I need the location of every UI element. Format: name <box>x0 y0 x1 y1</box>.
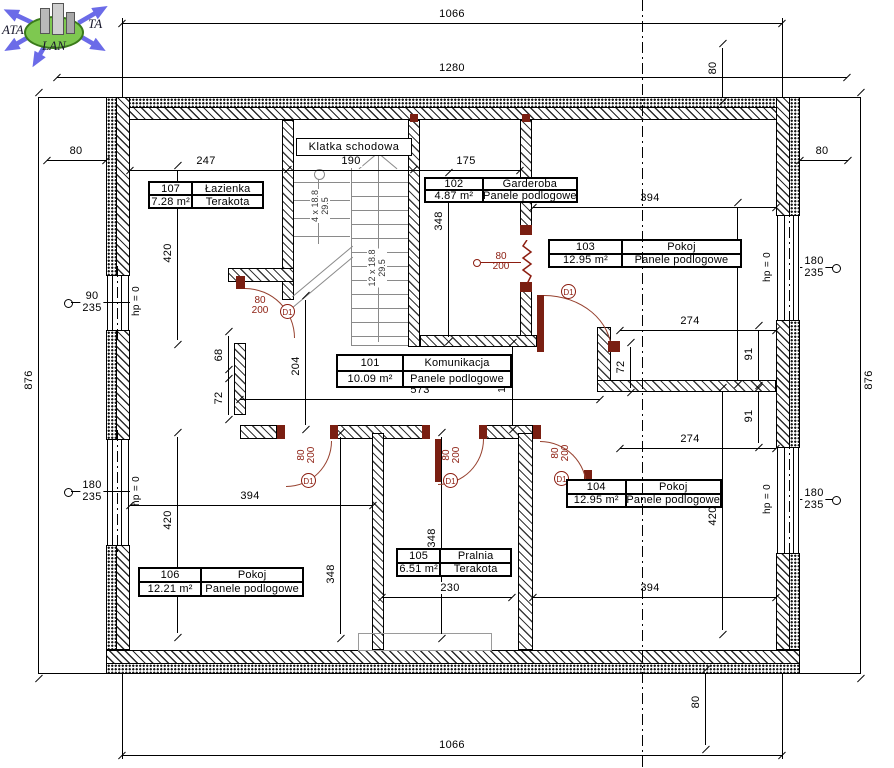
room-floor: Panele podlogowe <box>403 371 511 387</box>
door-jamb <box>479 425 487 439</box>
window-sill-label: hp = 0 <box>762 482 774 516</box>
wall-insulation <box>789 554 799 649</box>
window-size-width: 180 <box>80 479 103 491</box>
stair-tread <box>352 336 408 337</box>
dim-label: 876 <box>863 368 875 391</box>
room-area: 12.95 m² <box>549 254 622 268</box>
window-size-height: 235 <box>802 499 825 511</box>
dim-line-105-230 <box>382 597 512 598</box>
dim-label: 1066 <box>437 739 467 751</box>
wall-hall-left <box>234 343 246 415</box>
stair-walk-line <box>378 152 379 342</box>
room-name: Pokoj <box>622 240 741 254</box>
room-table-105: 105 Pralnia 6.51 m² Terakota <box>396 548 512 577</box>
fixture-outline <box>358 633 492 651</box>
door-size-label: 80200 <box>551 445 571 462</box>
dim-line-hall-204 <box>305 300 306 425</box>
dim-label: 876 <box>23 368 35 391</box>
stair-tread <box>352 182 408 183</box>
window-size-width: 90 <box>84 290 101 302</box>
dim-line-72-left <box>228 374 229 415</box>
logo-building-icon <box>66 12 75 34</box>
stair-flight-short-label: 4 x 18.829.5 <box>310 189 330 223</box>
dim-line-vest-132 <box>512 347 513 425</box>
dim-line-104-394 <box>533 597 776 598</box>
dim-label: 348 <box>433 209 445 232</box>
dim-label: 274 <box>678 433 701 445</box>
door-tag: D1 <box>280 304 295 319</box>
dim-label: 420 <box>162 508 174 531</box>
wall-hatch <box>777 554 789 649</box>
door-jamb <box>533 425 541 439</box>
outer-wall-right-upper <box>776 97 800 216</box>
dim-line-106-348 <box>340 437 341 634</box>
dim-line-rooms-top <box>130 170 520 171</box>
dim-label: 80 <box>707 60 719 77</box>
door-size-label: 80200 <box>442 447 462 464</box>
dim-line-103-420 <box>737 207 738 380</box>
outer-wall-right-middle <box>776 320 800 448</box>
wall-hatch <box>107 651 799 663</box>
room-area: 12.95 m² <box>567 494 626 508</box>
window-sill-label: hp = 0 <box>762 250 774 284</box>
room-table-103: 103 Pokoj 12.95 m² Panele podlogowe <box>548 239 742 268</box>
door-tag: D1 <box>561 284 576 299</box>
room-floor: Panele podlogowe <box>201 582 303 596</box>
dim-label: 72 <box>213 390 225 407</box>
wall-hall-bottom-a <box>240 425 277 439</box>
window-centerline <box>789 206 790 330</box>
extension-line <box>122 18 123 97</box>
dim-line-91-bottom <box>758 392 759 443</box>
extension-line <box>38 97 106 98</box>
extension-line <box>782 674 783 759</box>
dim-label: 247 <box>194 155 217 167</box>
dim-line-103-394 <box>533 207 776 208</box>
room-number: 102 <box>425 178 483 190</box>
dim-line-106-394 <box>130 505 373 506</box>
outer-wall-right-lower <box>776 553 800 650</box>
room-name: Pokoj <box>201 568 303 582</box>
dim-label: 80 <box>690 694 702 711</box>
wall-hatch <box>117 331 129 439</box>
opening-zigzag-icon <box>521 240 533 289</box>
dim-label: 420 <box>162 241 174 264</box>
wall-insulation <box>107 98 799 108</box>
dim-line-bottom-1066 <box>122 755 782 756</box>
door-swing-arc <box>544 295 612 352</box>
room-table-104: 104 Pokoj 12.95 m² Panele podlogowe <box>566 479 722 508</box>
dim-label: 91 <box>743 346 755 363</box>
logo-building-icon <box>40 8 50 34</box>
stairwell-label-box: Klatka schodowa <box>296 138 412 156</box>
logo-text-right: TA <box>88 16 102 32</box>
door-jamb <box>422 425 430 439</box>
extension-line <box>800 673 860 674</box>
wall-hall-top <box>420 335 537 347</box>
wall-insulation <box>107 663 799 673</box>
dim-label: 72 <box>615 359 627 376</box>
wall-insulation <box>107 546 117 649</box>
dim-label: 348 <box>325 562 337 585</box>
stair-tread <box>352 322 408 323</box>
stair-flight-long-label: 12 x 18.829.5 <box>367 248 387 287</box>
door-leader-circle <box>473 259 481 267</box>
stair-tread <box>352 294 408 295</box>
dim-line-104-420 <box>722 392 723 630</box>
door-jamb <box>330 425 338 439</box>
room-floor: Panele podlogowe <box>483 190 577 202</box>
outer-wall-left-upper <box>106 97 130 276</box>
door-jamb <box>410 114 418 122</box>
dim-label: 204 <box>290 354 302 377</box>
room-name: Garderoba <box>483 178 577 190</box>
window-leader-circle <box>832 264 841 273</box>
door-size-label: 80200 <box>297 447 317 464</box>
wall-hatch <box>107 108 799 119</box>
dim-line-72-right <box>630 347 631 388</box>
floor-plan-canvas: ATA TA LAN 90 235 hp = 0 180 235 hp = 0 … <box>0 0 894 768</box>
wall-hatch <box>117 546 129 649</box>
window-leader-circle <box>832 496 841 505</box>
room-table-106: 106 Pokoj 12.21 m² Panele podlogowe <box>138 567 304 597</box>
dim-label: 274 <box>678 315 701 327</box>
room-floor: Terakota <box>440 563 511 577</box>
window-sill-label: hp = 0 <box>131 284 143 318</box>
logo-text-left: ATA <box>2 22 24 38</box>
window-size-height: 235 <box>802 267 825 279</box>
window-centerline <box>117 430 118 555</box>
dim-line-bottom-80 <box>705 674 706 745</box>
door-jamb <box>522 114 530 122</box>
door-size-label: 80200 <box>252 296 269 316</box>
wall-insulation <box>789 321 799 447</box>
dim-label: 1066 <box>437 8 467 20</box>
stair-bottom-edge <box>351 345 408 346</box>
room-table-107: 107 Łazienka 7.28 m² Terakota <box>148 181 264 209</box>
room-name: Komunikacja <box>403 355 511 371</box>
dim-label: 175 <box>454 155 477 167</box>
dim-label: 394 <box>238 490 261 502</box>
dim-line-right-876 <box>860 97 861 674</box>
wall-room104-top <box>597 380 776 392</box>
door-jamb <box>277 425 285 439</box>
room-area: 12.21 m² <box>139 582 201 596</box>
stair-tread <box>352 196 408 197</box>
stair-tread <box>352 238 408 239</box>
window-leader-circle <box>64 299 73 308</box>
stair-divider <box>351 168 352 345</box>
door-tag: D1 <box>443 473 458 488</box>
room-area: 6.51 m² <box>397 563 440 577</box>
dim-line-top-1280 <box>57 77 847 78</box>
wall-insulation <box>107 98 117 275</box>
outer-wall-left-middle <box>106 330 130 440</box>
dim-line-top-80 <box>722 48 723 97</box>
room-area: 4.87 m² <box>425 190 483 202</box>
room-area: 7.28 m² <box>149 195 192 208</box>
window-sill-label: hp = 0 <box>131 474 143 508</box>
room-number: 103 <box>549 240 622 254</box>
dim-line-106-420 <box>177 437 178 633</box>
wall-room106-right <box>372 433 384 650</box>
stair-tread <box>352 308 408 309</box>
wall-hatch <box>777 321 789 447</box>
extension-line <box>38 673 106 674</box>
room-number: 105 <box>397 549 440 563</box>
wall-insulation <box>789 98 799 215</box>
dim-line-91-top <box>758 330 759 381</box>
room-number: 106 <box>139 568 201 582</box>
room-number: 104 <box>567 480 626 494</box>
dim-label: 230 <box>438 582 461 594</box>
window-size-width: 180 <box>802 487 825 499</box>
door-leaf <box>537 295 544 352</box>
dim-label: 80 <box>814 145 831 157</box>
dim-line-left-80 <box>47 160 106 161</box>
window-size-height: 235 <box>80 302 103 314</box>
door-jamb <box>608 341 620 352</box>
dim-label: 80 <box>68 145 85 157</box>
window-centerline <box>789 438 790 563</box>
door-jamb <box>520 225 532 235</box>
outer-wall-top <box>106 97 800 120</box>
extension-line <box>800 97 860 98</box>
room-floor: Panele podlogowe <box>626 494 721 508</box>
wall-insulation <box>107 331 117 439</box>
dim-line-274-top <box>620 330 776 331</box>
window-centerline <box>117 266 118 340</box>
door-jamb <box>236 276 245 289</box>
logo-building-icon <box>52 3 64 35</box>
dim-line-left-876 <box>38 97 39 674</box>
stair-break-line <box>292 246 353 298</box>
dim-label: 348 <box>426 526 438 549</box>
stair-break-line <box>292 257 353 309</box>
dim-label: 190 <box>339 155 362 167</box>
window-size-height: 235 <box>80 491 103 503</box>
window-size-width: 180 <box>802 255 825 267</box>
dim-label: 91 <box>743 408 755 425</box>
extension-line <box>782 18 783 97</box>
axis-centerline <box>642 0 643 768</box>
outer-wall-bottom <box>106 650 800 674</box>
room-name: Pralnia <box>440 549 511 563</box>
extension-line <box>122 674 123 759</box>
stair-tread <box>352 210 408 211</box>
room-area: 10.09 m² <box>337 371 403 387</box>
logo-text-bottom: LAN <box>42 38 66 54</box>
stair-tread <box>352 224 408 225</box>
stair-tread <box>294 182 350 183</box>
room-table-101: 101 Komunikacja 10.09 m² Panele podlogow… <box>336 354 512 388</box>
room-table-102: 102 Garderoba 4.87 m² Panele podlogowe <box>424 177 578 203</box>
stairwell-label: Klatka schodowa <box>309 141 400 153</box>
door-tag: D1 <box>301 473 316 488</box>
dim-line-top-1066 <box>122 23 782 24</box>
dim-line-right-80 <box>800 160 848 161</box>
room-number: 107 <box>149 182 192 195</box>
room-number: 101 <box>337 355 403 371</box>
company-logo: ATA TA LAN <box>0 0 120 66</box>
wall-room105-right <box>518 433 533 650</box>
window-leader-circle <box>64 488 73 497</box>
room-name: Pokoj <box>626 480 721 494</box>
room-floor: Terakota <box>192 195 263 208</box>
dim-label: 68 <box>213 347 225 364</box>
dim-line-274-bottom <box>620 448 776 449</box>
door-size-label: 80200 <box>493 252 510 272</box>
wall-hatch <box>777 98 789 215</box>
outer-wall-left-lower <box>106 545 130 650</box>
room-floor: Panele podlogowe <box>622 254 741 268</box>
dim-line-hall-573 <box>240 399 600 400</box>
wall-hatch <box>117 98 129 275</box>
stair-tread <box>294 236 350 237</box>
dim-label: 1280 <box>437 62 467 74</box>
room-name: Łazienka <box>192 182 263 195</box>
